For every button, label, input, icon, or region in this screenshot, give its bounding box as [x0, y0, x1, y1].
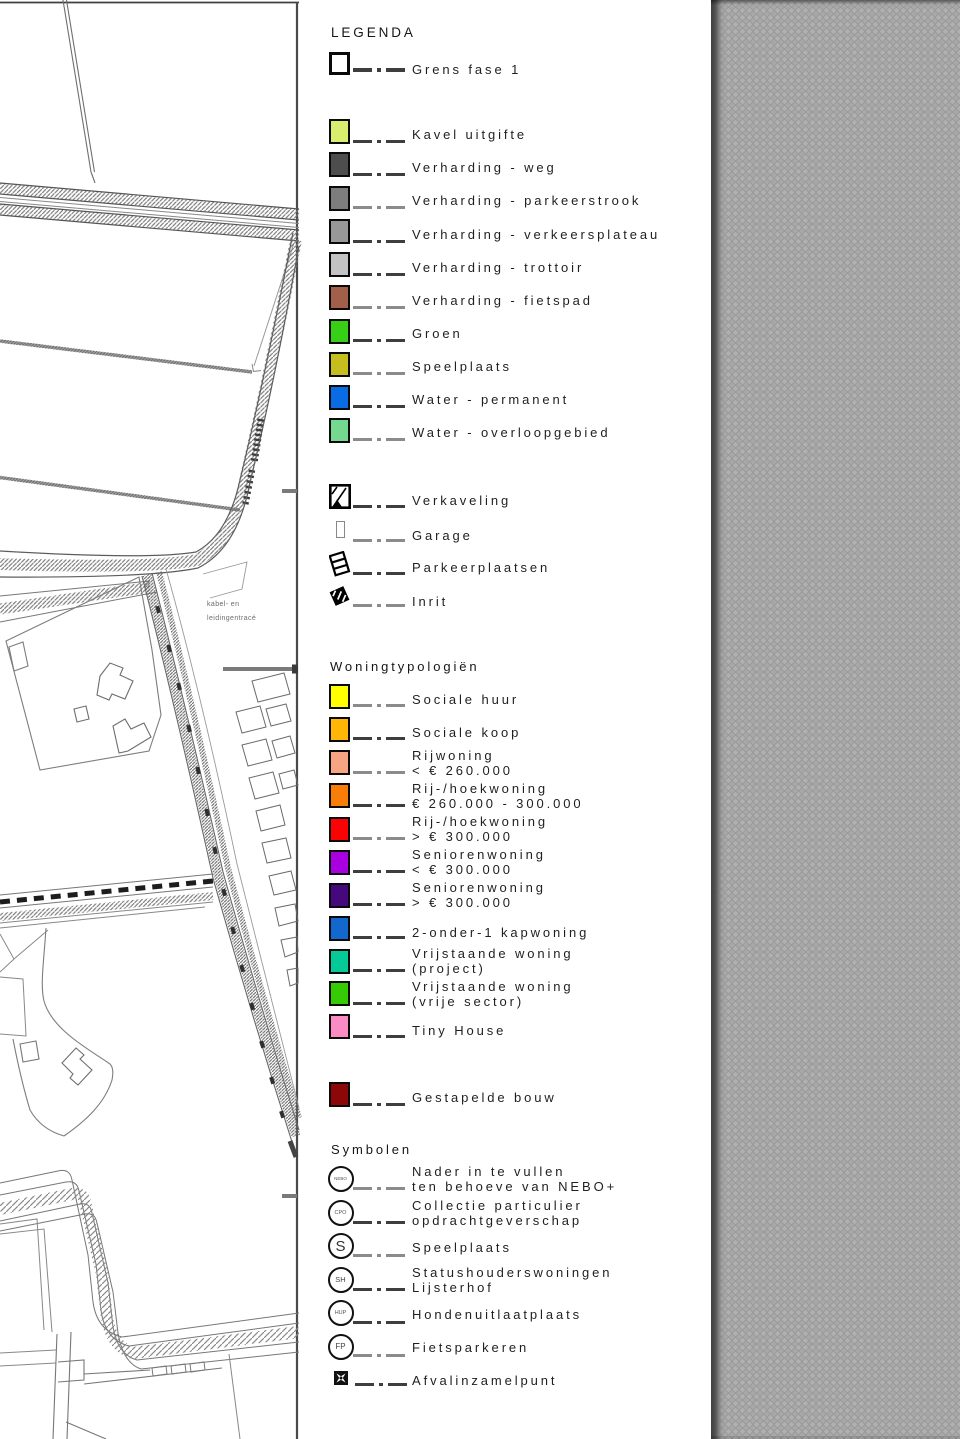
- svg-text:kabel- en: kabel- en: [207, 601, 239, 608]
- svg-text:leidingentracé: leidingentracé: [207, 615, 256, 622]
